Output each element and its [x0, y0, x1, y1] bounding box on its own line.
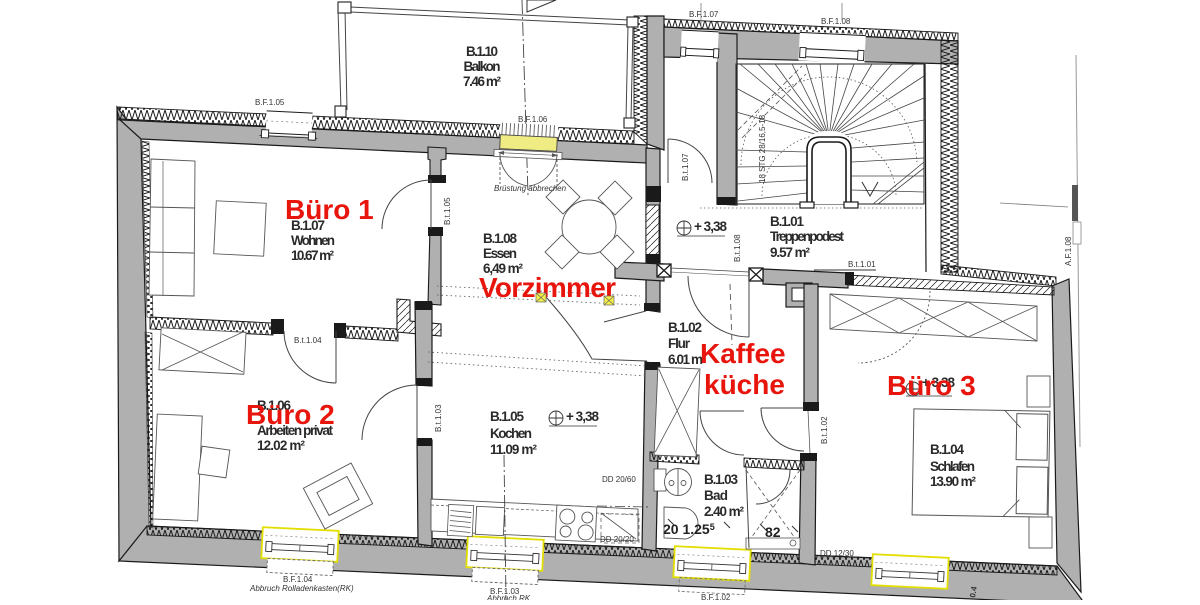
svg-text:+ 3,38: + 3,38	[694, 219, 727, 234]
svg-text:20 1.255: 20 1.255	[663, 521, 715, 537]
svg-text:13.90 m²: 13.90 m²	[930, 474, 977, 489]
svg-text:B.t.1.08: B.t.1.08	[733, 234, 742, 262]
svg-text:Balkon: Balkon	[464, 59, 501, 74]
svg-text:B.1.05: B.1.05	[490, 409, 524, 424]
svg-text:10.67 m²: 10.67 m²	[291, 248, 335, 263]
svg-text:Kochen: Kochen	[490, 426, 532, 441]
svg-text:DD 12/30: DD 12/30	[820, 549, 854, 558]
svg-text:Brüstung abbrechen: Brüstung abbrechen	[494, 184, 567, 193]
svg-text:Büro 1: Büro 1	[285, 194, 374, 225]
svg-text:B.1.08: B.1.08	[483, 231, 517, 246]
svg-text:Vorzimmer: Vorzimmer	[479, 272, 616, 303]
svg-text:DD 20/20: DD 20/20	[600, 535, 634, 544]
svg-text:B.t.1.04: B.t.1.04	[294, 336, 322, 345]
svg-text:B.1.01: B.1.01	[770, 214, 804, 229]
svg-text:B.F.1.07: B.F.1.07	[689, 10, 719, 19]
svg-text:12.02 m²: 12.02 m²	[257, 438, 306, 453]
svg-text:Büro 2: Büro 2	[246, 399, 335, 430]
svg-text:küche: küche	[704, 369, 785, 400]
svg-text:B.1.04: B.1.04	[930, 442, 964, 457]
svg-text:B.F.1.04: B.F.1.04	[283, 575, 313, 584]
svg-text:Kaffee: Kaffee	[700, 338, 786, 369]
svg-text:B.F.1.05: B.F.1.05	[255, 98, 285, 107]
svg-text:11.09 m²: 11.09 m²	[490, 442, 538, 457]
svg-text:A.F.1.08: A.F.1.08	[1064, 236, 1073, 266]
svg-text:Essen: Essen	[483, 246, 517, 261]
svg-text:B.t.1.05: B.t.1.05	[443, 197, 452, 225]
svg-text:82: 82	[765, 524, 781, 540]
svg-text:Abbruch Rolladenkasten(RK): Abbruch Rolladenkasten(RK)	[249, 584, 354, 593]
svg-text:Wohnen: Wohnen	[291, 233, 335, 248]
svg-text:Büro 3: Büro 3	[887, 370, 976, 401]
svg-text:DD 20/60: DD 20/60	[602, 475, 636, 484]
svg-text:Abbruch RK: Abbruch RK	[486, 594, 531, 600]
svg-text:B.t.1.01: B.t.1.01	[848, 260, 876, 269]
svg-text:B.t.1.03: B.t.1.03	[434, 404, 443, 432]
svg-text:9.57 m²: 9.57 m²	[770, 245, 811, 260]
svg-text:Bad: Bad	[704, 488, 728, 503]
svg-text:Treppenpodest: Treppenpodest	[770, 229, 845, 244]
svg-text:B.1.02: B.1.02	[668, 320, 702, 335]
svg-text:7.46 m²: 7.46 m²	[463, 74, 502, 89]
svg-text:+ 3,38: + 3,38	[566, 409, 599, 424]
svg-text:Flur: Flur	[668, 336, 691, 351]
svg-text:18 STG 28/16,5-18: 18 STG 28/16,5-18	[758, 114, 767, 183]
svg-text:B.t.1.02: B.t.1.02	[820, 416, 829, 444]
svg-text:Schlafen: Schlafen	[930, 459, 975, 474]
svg-text:6.01 m: 6.01 m	[668, 352, 703, 367]
svg-text:B.F.1.08: B.F.1.08	[821, 17, 851, 26]
svg-text:B.1.03: B.1.03	[704, 472, 738, 487]
svg-text:B.F.1.06: B.F.1.06	[518, 115, 548, 124]
svg-text:B.F.1.02: B.F.1.02	[701, 593, 731, 600]
svg-text:B.1.10: B.1.10	[466, 44, 498, 59]
svg-text:2.40 m²: 2.40 m²	[704, 504, 745, 519]
svg-text:B.t.1.07: B.t.1.07	[681, 153, 690, 181]
